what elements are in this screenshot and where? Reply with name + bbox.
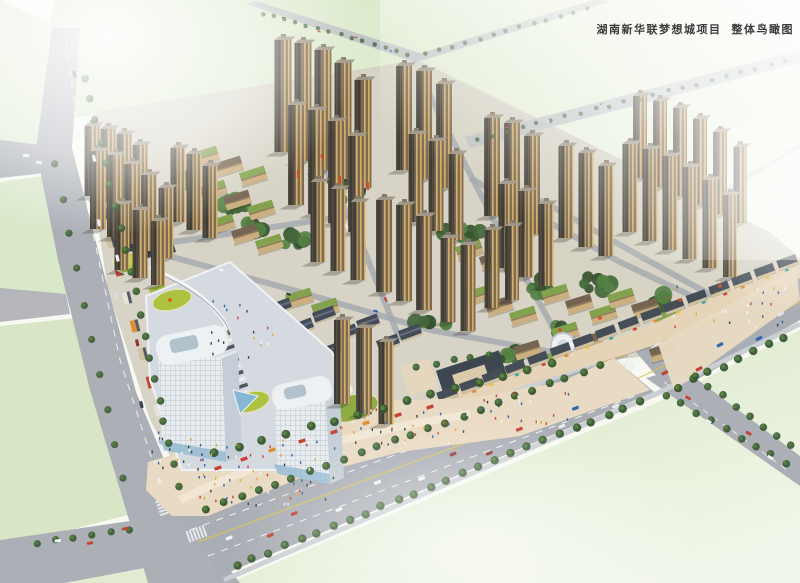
project-caption: 湖南新华联梦想城项目整体鸟瞰图 (597, 21, 795, 37)
birdseye-rendering-canvas (0, 0, 800, 583)
view-label: 整体鸟瞰图 (732, 23, 795, 36)
project-title: 湖南新华联梦想城项目 (597, 23, 722, 36)
light-glare-overlay (0, 0, 800, 583)
aerial-rendering-page: 湖南新华联梦想城项目整体鸟瞰图 (0, 0, 800, 583)
